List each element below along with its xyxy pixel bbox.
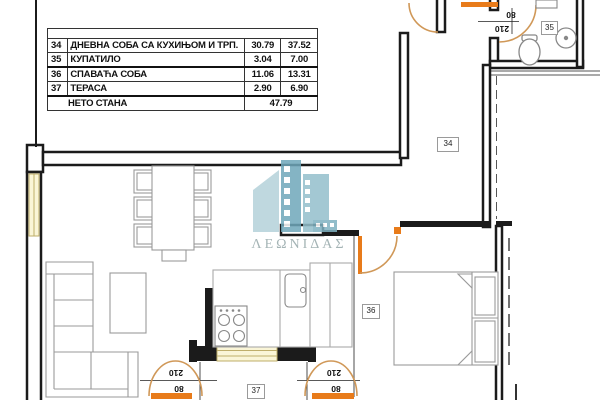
table-row: 37 ТЕРАСА 2.90 6.90 bbox=[48, 82, 318, 97]
window-kitchen bbox=[217, 346, 277, 361]
total-value: 47.79 bbox=[245, 96, 318, 111]
dim-terrace-right-door-width: 80 bbox=[325, 383, 347, 394]
window-left bbox=[29, 174, 39, 236]
toilet bbox=[519, 35, 540, 65]
row-area-gross: 37.52 bbox=[281, 39, 318, 53]
total-label: НЕТО СТАНА bbox=[48, 96, 245, 111]
dim-terrace-left-door-height: 210 bbox=[162, 367, 190, 378]
floor-plan-canvas: ΛΕΩΝΙΔΑΣ 34 ДНЕВНА СОБА СА КУХИЊОМ И ТРП… bbox=[0, 0, 600, 400]
dim-terrace-left-door-width: 80 bbox=[168, 383, 190, 394]
row-area-gross: 13.31 bbox=[281, 67, 318, 82]
shower-drain-circle bbox=[556, 28, 576, 48]
room-label-terrace: 37 bbox=[247, 384, 265, 399]
dim-terrace-right-door-height: 210 bbox=[320, 367, 348, 378]
row-area-net: 3.04 bbox=[245, 53, 281, 68]
row-area-net: 11.06 bbox=[245, 67, 281, 82]
row-name: ТЕРАСА bbox=[68, 82, 245, 97]
bedroom-door-jamb bbox=[394, 227, 401, 234]
row-name: СПАВАЋА СОБА bbox=[68, 67, 245, 82]
pillow-bottom bbox=[475, 321, 495, 362]
pillow-top bbox=[475, 277, 495, 315]
kitchen-sink bbox=[285, 274, 306, 307]
room-label-living: 34 bbox=[437, 137, 459, 152]
table-row: 35 КУПАТИЛО 3.04 7.00 bbox=[48, 53, 318, 68]
bedroom-door-arc bbox=[360, 236, 397, 273]
row-area-net: 2.90 bbox=[245, 82, 281, 97]
dim-bathroom-door-width: 80 bbox=[500, 9, 522, 20]
stove bbox=[215, 306, 247, 346]
row-num: 36 bbox=[48, 67, 68, 82]
row-area-gross: 7.00 bbox=[281, 53, 318, 68]
row-name: КУПАТИЛО bbox=[68, 53, 245, 68]
table-row: 34 ДНЕВНА СОБА СА КУХИЊОМ И ТРП. 30.79 3… bbox=[48, 39, 318, 53]
table-header-row bbox=[48, 29, 318, 39]
room-label-bedroom: 36 bbox=[362, 304, 380, 319]
row-area-net: 30.79 bbox=[245, 39, 281, 53]
row-area-gross: 6.90 bbox=[281, 82, 318, 97]
bathroom-door-leaf bbox=[461, 2, 498, 7]
dining-table bbox=[152, 166, 194, 261]
row-name: ДНЕВНА СОБА СА КУХИЊОМ И ТРП. bbox=[68, 39, 245, 53]
row-num: 34 bbox=[48, 39, 68, 53]
coffee-table bbox=[110, 273, 146, 333]
bed bbox=[394, 272, 498, 365]
room-label-bathroom: 35 bbox=[541, 21, 558, 35]
bathroom-sink bbox=[536, 0, 557, 8]
table-row: 36 СПАВАЋА СОБА 11.06 13.31 bbox=[48, 67, 318, 82]
entry-door-arc bbox=[409, 3, 438, 32]
row-num: 35 bbox=[48, 53, 68, 68]
watermark-text: ΛΕΩΝΙΔΑΣ bbox=[251, 237, 346, 252]
logo-base-windows bbox=[316, 223, 334, 227]
row-num: 37 bbox=[48, 82, 68, 97]
bedroom-door-leaf bbox=[358, 236, 362, 274]
watermark-logo: ΛΕΩΝΙΔΑΣ bbox=[251, 160, 346, 252]
logo-building-left bbox=[253, 170, 279, 232]
dim-bathroom-door-height: 210 bbox=[488, 23, 516, 34]
table-total-row: НЕТО СТАНА 47.79 bbox=[48, 96, 318, 111]
area-table: 34 ДНЕВНА СОБА СА КУХИЊОМ И ТРП. 30.79 3… bbox=[47, 28, 318, 111]
